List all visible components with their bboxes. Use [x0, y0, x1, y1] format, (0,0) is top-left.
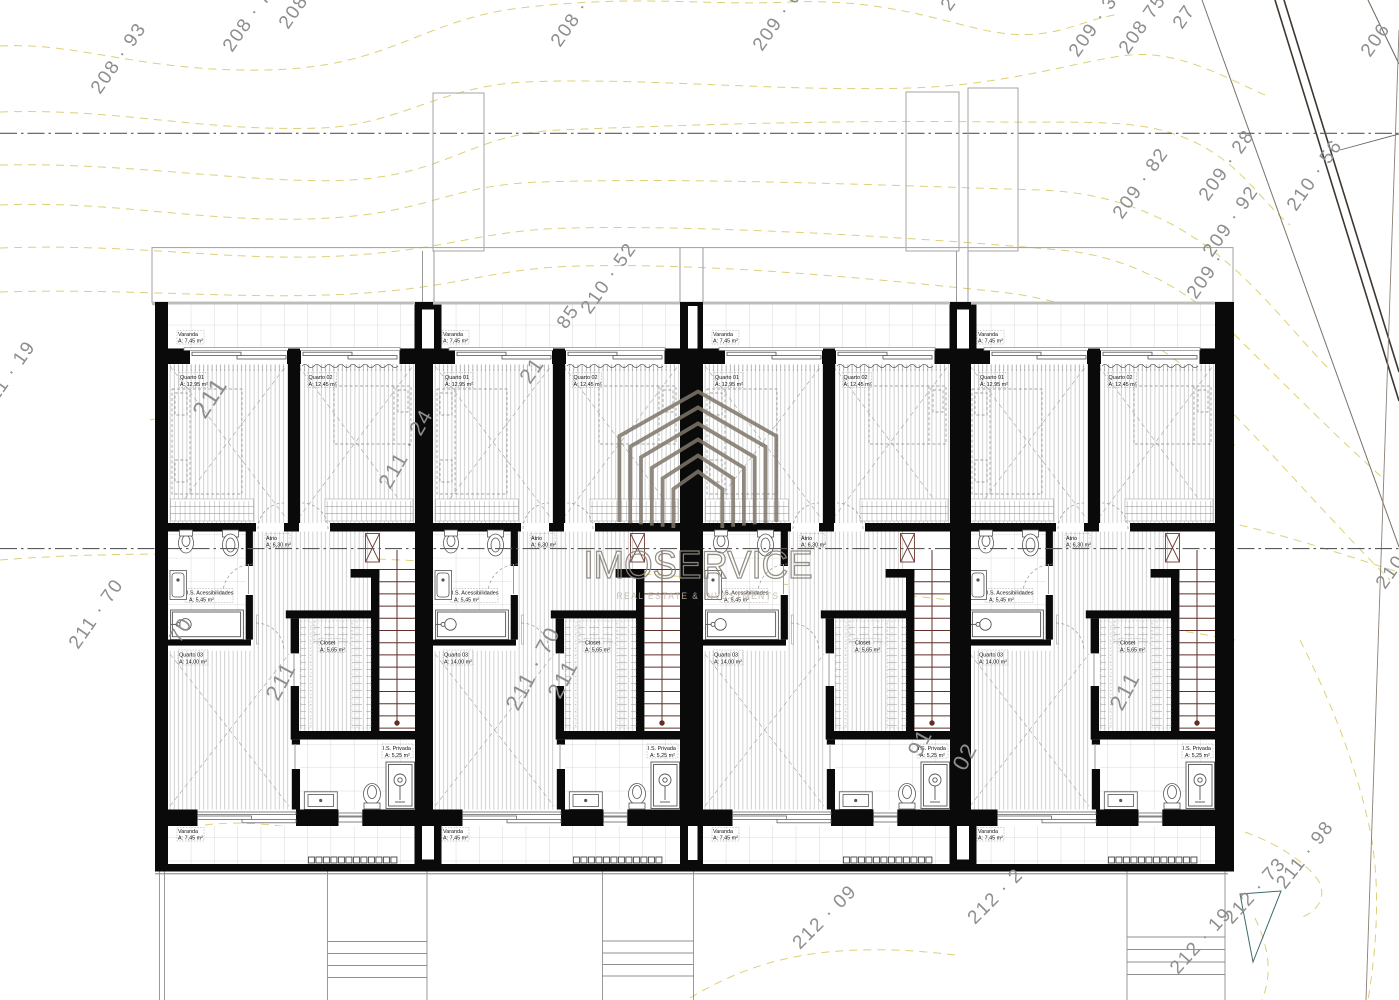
- svg-text:REAL ESTATE & INVESTMENTS: REAL ESTATE & INVESTMENTS: [617, 591, 780, 601]
- svg-text:IMOSERVICE: IMOSERVICE: [584, 544, 813, 587]
